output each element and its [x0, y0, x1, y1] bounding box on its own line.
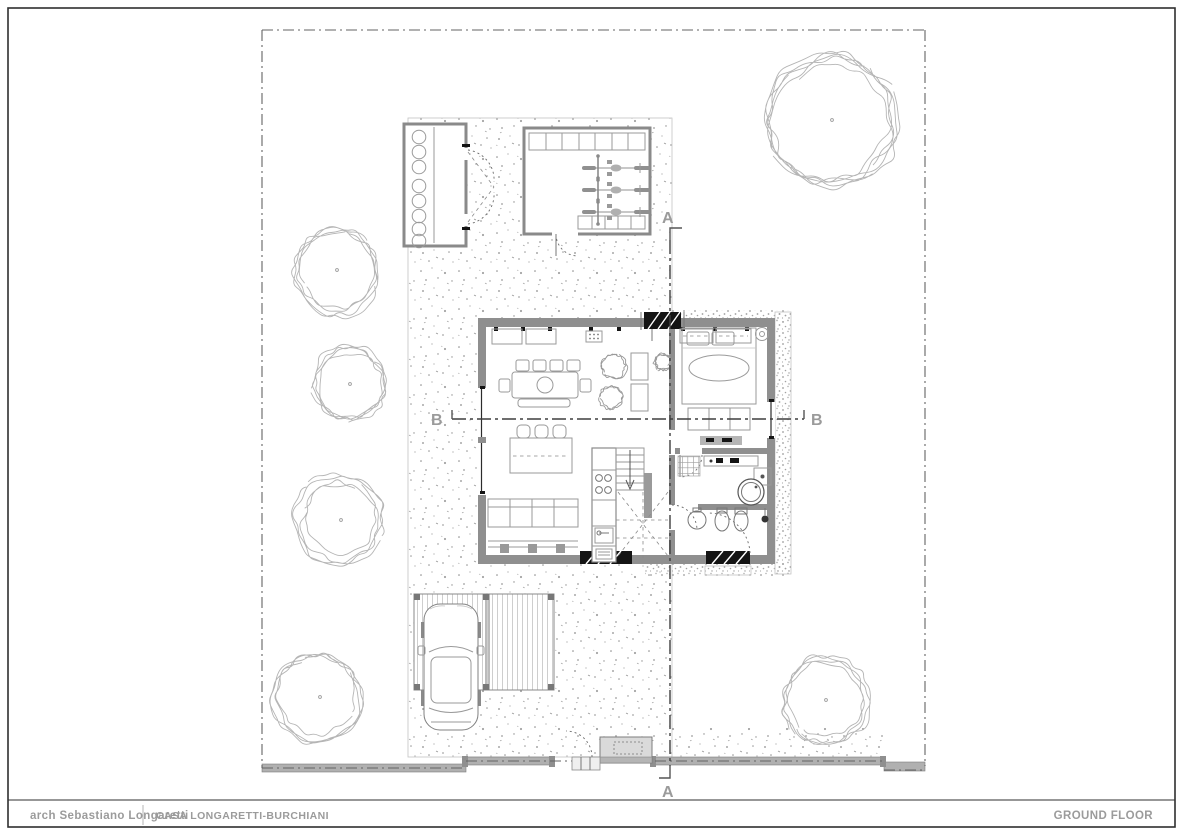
dining-table — [512, 372, 578, 398]
section-label-b-right: B — [811, 412, 823, 429]
kitchen-counter — [488, 499, 578, 527]
section-label-a-top: A — [662, 210, 674, 227]
storage-door-opening — [462, 214, 469, 226]
kitchen-island — [510, 438, 572, 473]
stair-wall — [644, 473, 652, 518]
bath-mat — [678, 456, 700, 476]
project-name: CASA LONGARETTI-BURCHIANI — [156, 810, 329, 822]
gate-steps — [572, 757, 600, 770]
floor-plan-canvas: A A B B arch Sebastiano Longaretti CASA … — [0, 0, 1183, 835]
drawing-sheet: A A B B arch Sebastiano Longaretti CASA … — [0, 0, 1183, 835]
sheet-title: GROUND FLOOR — [1054, 810, 1154, 822]
section-label-a-bottom: A — [662, 784, 674, 801]
shower-head — [762, 516, 769, 523]
storage-door-opening — [462, 148, 469, 160]
section-label-b-left: B — [431, 412, 443, 429]
kitchen-tall-unit — [592, 448, 616, 562]
car — [418, 604, 484, 730]
